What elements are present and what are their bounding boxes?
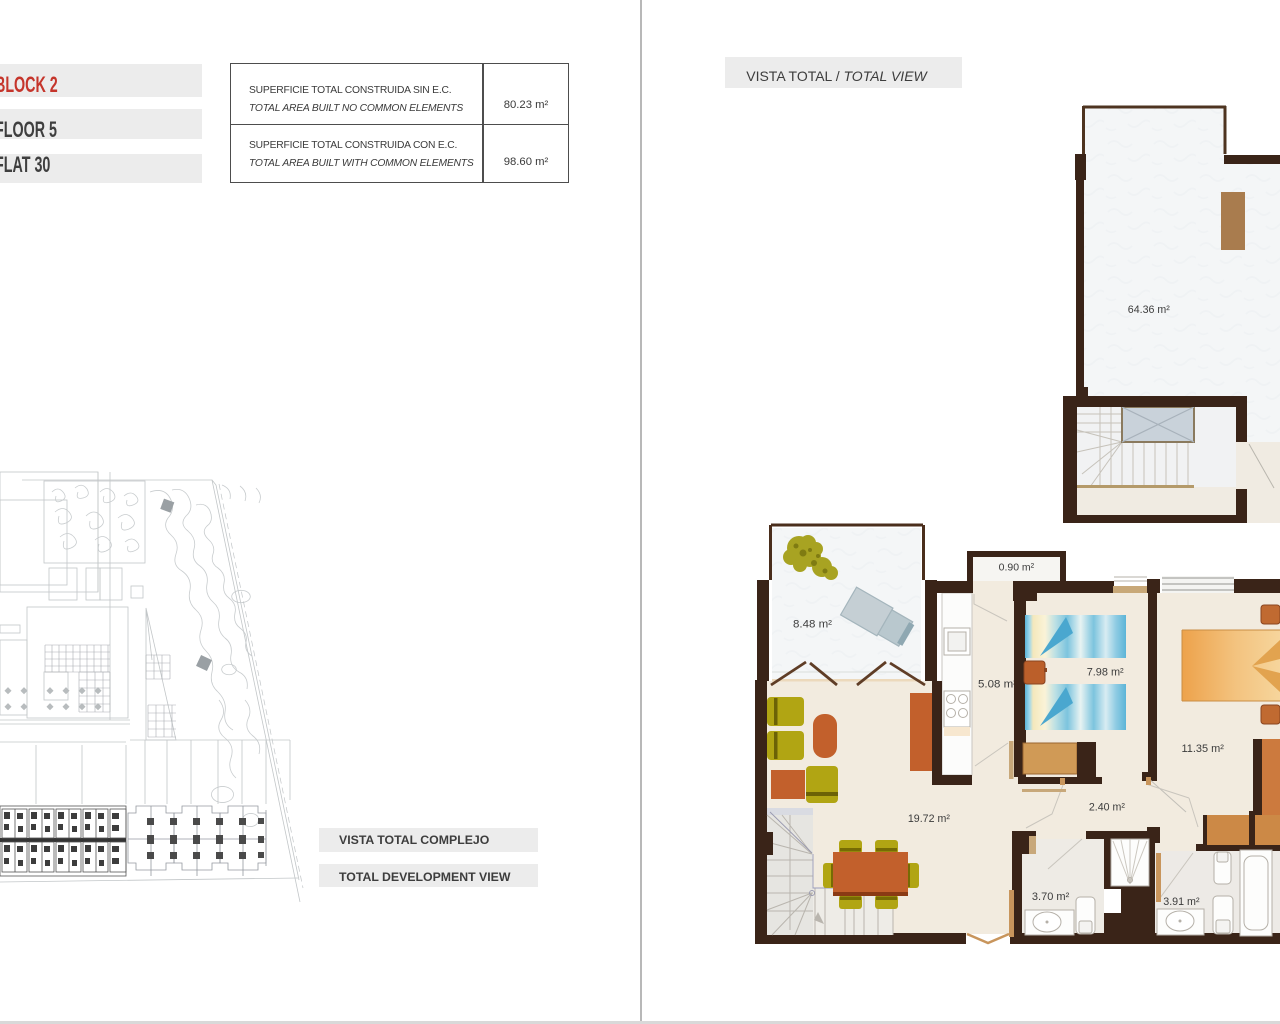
svg-text:19.72 m²: 19.72 m² bbox=[908, 813, 950, 825]
svg-text:7.98 m²: 7.98 m² bbox=[1087, 667, 1124, 679]
svg-text:5.08 m²: 5.08 m² bbox=[978, 679, 1017, 691]
svg-text:11.35 m²: 11.35 m² bbox=[1182, 743, 1225, 755]
svg-text:8.48 m²: 8.48 m² bbox=[793, 619, 832, 631]
svg-text:64.36 m²: 64.36 m² bbox=[1128, 304, 1170, 316]
svg-text:0.90 m²: 0.90 m² bbox=[999, 562, 1035, 574]
svg-text:2.40 m²: 2.40 m² bbox=[1089, 802, 1125, 814]
svg-text:3.70 m²: 3.70 m² bbox=[1032, 891, 1070, 903]
svg-text:3.91 m²: 3.91 m² bbox=[1163, 896, 1200, 908]
